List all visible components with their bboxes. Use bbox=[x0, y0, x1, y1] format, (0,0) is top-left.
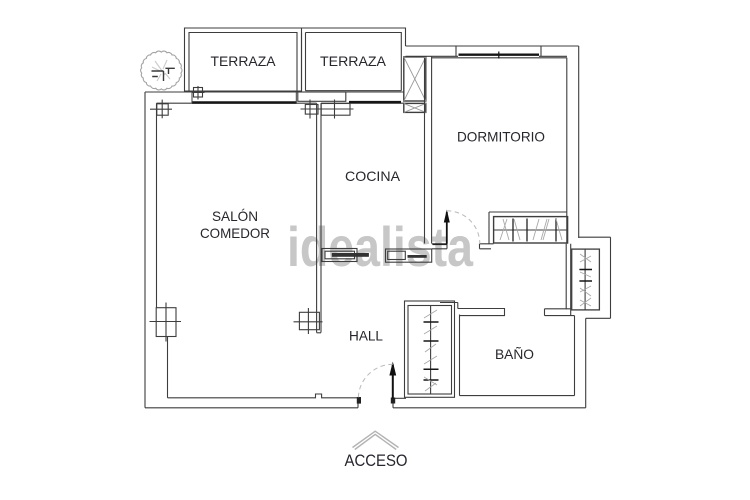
svg-text:DORMITORIO: DORMITORIO bbox=[457, 129, 545, 145]
svg-text:TERRAZA: TERRAZA bbox=[320, 53, 387, 69]
svg-text:COCINA: COCINA bbox=[345, 168, 401, 184]
svg-text:HALL: HALL bbox=[349, 328, 383, 344]
svg-text:ACCESO: ACCESO bbox=[345, 451, 408, 470]
svg-text:SALÓN: SALÓN bbox=[212, 208, 258, 224]
svg-text:COMEDOR: COMEDOR bbox=[200, 225, 270, 241]
svg-text:idealista: idealista bbox=[287, 215, 474, 278]
svg-text:BAÑO: BAÑO bbox=[495, 346, 534, 362]
svg-text:TERRAZA: TERRAZA bbox=[211, 53, 277, 69]
